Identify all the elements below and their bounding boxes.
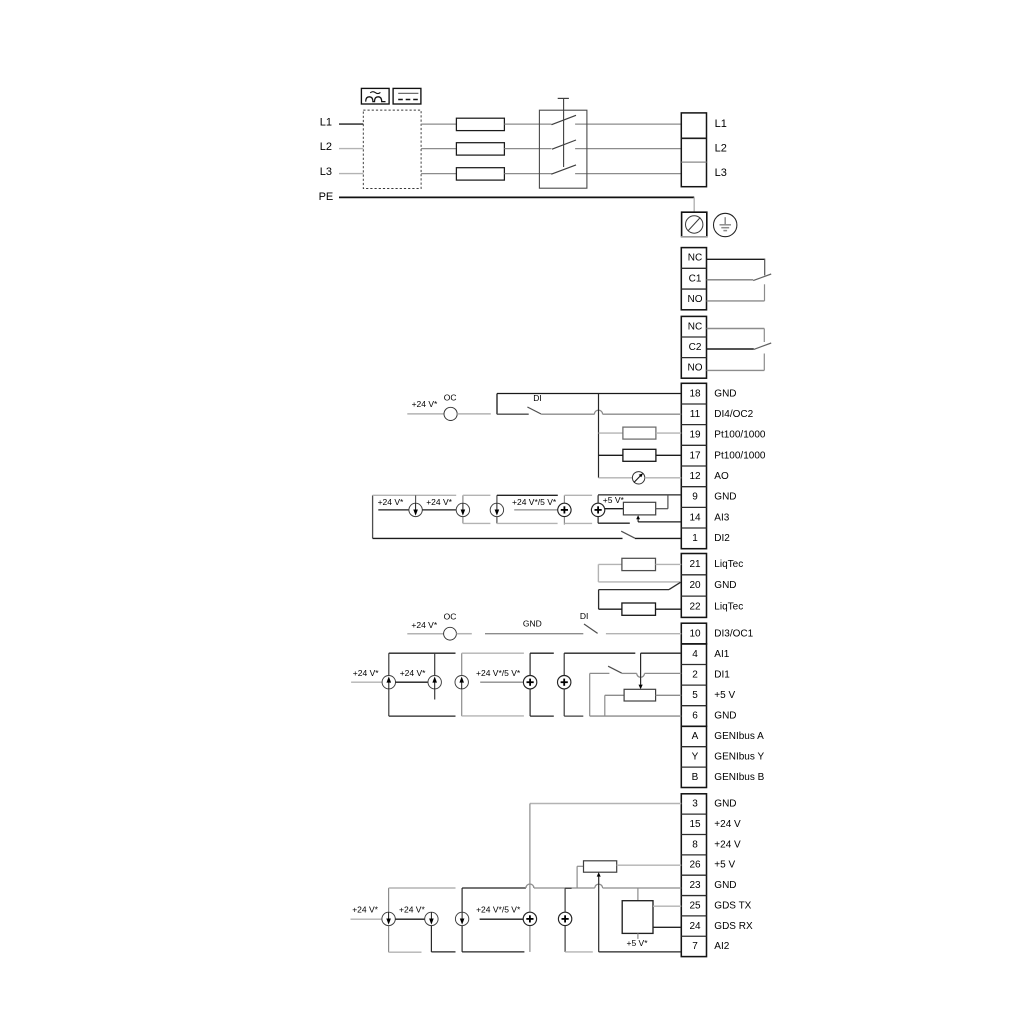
- svg-text:25: 25: [689, 900, 701, 911]
- svg-text:+24 V*/5 V*: +24 V*/5 V*: [476, 904, 521, 914]
- svg-text:+24 V: +24 V: [714, 839, 741, 850]
- svg-text:GENIbus B: GENIbus B: [714, 772, 764, 783]
- svg-text:DI: DI: [533, 393, 542, 403]
- svg-text:LiqTec: LiqTec: [714, 559, 743, 570]
- svg-text:Pt100/1000: Pt100/1000: [714, 450, 766, 461]
- svg-text:12: 12: [689, 471, 701, 482]
- svg-text:9: 9: [692, 492, 698, 503]
- svg-text:PE: PE: [319, 191, 334, 203]
- svg-text:NC: NC: [688, 321, 702, 332]
- svg-text:+24 V*: +24 V*: [411, 620, 437, 630]
- svg-text:Y: Y: [692, 752, 699, 763]
- svg-text:+24 V: +24 V: [714, 819, 741, 830]
- svg-text:Pt100/1000: Pt100/1000: [714, 430, 766, 441]
- svg-text:NO: NO: [688, 294, 703, 305]
- svg-text:GND: GND: [523, 619, 542, 629]
- svg-text:18: 18: [689, 388, 701, 399]
- svg-text:GND: GND: [714, 492, 736, 503]
- svg-text:4: 4: [692, 649, 698, 660]
- svg-text:DI2: DI2: [714, 533, 730, 544]
- svg-text:21: 21: [689, 559, 701, 570]
- svg-text:26: 26: [689, 860, 701, 871]
- svg-text:22: 22: [689, 601, 701, 612]
- svg-text:AI2: AI2: [714, 941, 729, 952]
- svg-text:+24 V*: +24 V*: [399, 904, 425, 914]
- svg-text:L2: L2: [715, 143, 727, 155]
- svg-text:1: 1: [692, 533, 698, 544]
- svg-text:DI3/OC1: DI3/OC1: [714, 628, 753, 639]
- svg-text:+24 V*: +24 V*: [400, 668, 426, 678]
- svg-text:GND: GND: [714, 580, 736, 591]
- svg-text:L1: L1: [320, 116, 332, 128]
- svg-text:C2: C2: [689, 342, 702, 353]
- svg-text:3: 3: [692, 799, 698, 810]
- svg-text:L2: L2: [320, 141, 332, 153]
- svg-text:LiqTec: LiqTec: [714, 601, 743, 612]
- svg-text:15: 15: [689, 819, 701, 830]
- svg-text:+24 V*/5 V*: +24 V*/5 V*: [476, 668, 521, 678]
- svg-text:NO: NO: [688, 363, 703, 374]
- svg-text:A: A: [692, 731, 699, 742]
- svg-text:+24 V*: +24 V*: [352, 904, 378, 914]
- svg-text:B: B: [692, 772, 699, 783]
- svg-text:DI1: DI1: [714, 670, 730, 681]
- svg-text:GND: GND: [714, 711, 736, 722]
- svg-text:+24 V*: +24 V*: [353, 668, 379, 678]
- svg-text:+24 V*: +24 V*: [412, 399, 438, 409]
- svg-text:17: 17: [689, 450, 701, 461]
- svg-text:+5 V*: +5 V*: [627, 938, 649, 948]
- svg-text:GND: GND: [714, 880, 736, 891]
- svg-text:AO: AO: [714, 471, 729, 482]
- svg-text:8: 8: [692, 839, 698, 850]
- svg-text:AI3: AI3: [714, 512, 729, 523]
- svg-text:+24 V*: +24 V*: [378, 497, 404, 507]
- svg-text:10: 10: [689, 628, 701, 639]
- svg-text:+5 V: +5 V: [714, 860, 735, 871]
- svg-text:DI4/OC2: DI4/OC2: [714, 409, 753, 420]
- svg-text:6: 6: [692, 711, 698, 722]
- svg-text:+5 V*: +5 V*: [603, 495, 625, 505]
- svg-text:GENIbus A: GENIbus A: [714, 731, 764, 742]
- svg-text:14: 14: [689, 512, 701, 523]
- svg-text:20: 20: [689, 580, 701, 591]
- svg-text:+5 V: +5 V: [714, 690, 735, 701]
- svg-text:23: 23: [689, 880, 701, 891]
- svg-text:C1: C1: [689, 273, 702, 284]
- svg-text:19: 19: [689, 430, 701, 441]
- svg-text:OC: OC: [444, 393, 457, 403]
- svg-text:5: 5: [692, 690, 698, 701]
- svg-text:GENIbus Y: GENIbus Y: [714, 752, 764, 763]
- svg-text:NC: NC: [688, 253, 702, 264]
- svg-text:GND: GND: [714, 799, 736, 810]
- svg-text:L3: L3: [715, 167, 727, 179]
- svg-text:L1: L1: [715, 118, 727, 130]
- svg-text:GDS RX: GDS RX: [714, 921, 753, 932]
- svg-text:GND: GND: [714, 388, 736, 399]
- svg-text:OC: OC: [444, 611, 457, 621]
- svg-text:+24 V*/5 V*: +24 V*/5 V*: [512, 497, 557, 507]
- svg-text:11: 11: [690, 409, 701, 420]
- svg-text:2: 2: [692, 670, 698, 681]
- svg-text:GDS TX: GDS TX: [714, 900, 751, 911]
- svg-text:+24 V*: +24 V*: [426, 497, 452, 507]
- svg-text:7: 7: [692, 941, 698, 952]
- svg-text:AI1: AI1: [714, 649, 729, 660]
- svg-text:DI: DI: [580, 611, 589, 621]
- svg-text:24: 24: [689, 921, 701, 932]
- svg-text:L3: L3: [320, 166, 332, 178]
